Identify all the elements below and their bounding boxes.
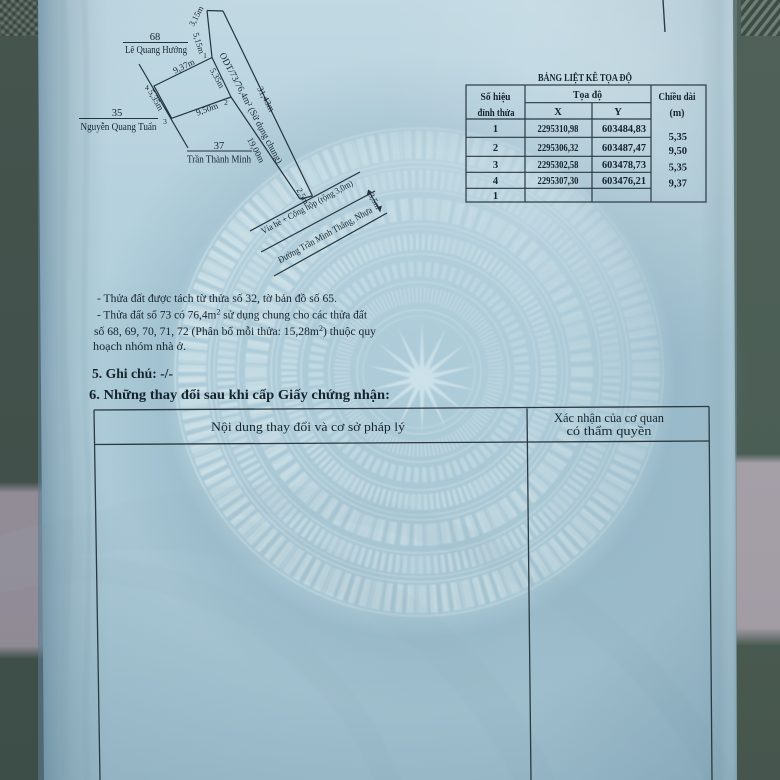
svg-text:603478,73: 603478,73 xyxy=(602,160,646,171)
svg-text:35: 35 xyxy=(112,108,123,119)
svg-text:Xác nhận của cơ quan: Xác nhận của cơ quan xyxy=(554,411,665,425)
svg-text:Lê Quang Hướng: Lê Quang Hướng xyxy=(125,45,188,56)
svg-text:2: 2 xyxy=(224,98,228,107)
svg-text:1: 1 xyxy=(493,124,498,135)
svg-text:Tọa độ: Tọa độ xyxy=(573,90,602,101)
svg-text:đỉnh thửa: đỉnh thửa xyxy=(478,108,515,119)
svg-text:603487,47: 603487,47 xyxy=(602,143,646,154)
svg-text:Trần Thành Minh: Trần Thành Minh xyxy=(187,155,252,166)
svg-text:(m): (m) xyxy=(670,108,685,119)
svg-text:BẢNG LIỆT KÊ TỌA ĐỘ: BẢNG LIỆT KÊ TỌA ĐỘ xyxy=(538,71,632,84)
svg-text:3: 3 xyxy=(493,160,498,171)
svg-text:5,35: 5,35 xyxy=(669,132,687,143)
svg-text:37: 37 xyxy=(214,141,225,152)
svg-text:603476,21: 603476,21 xyxy=(602,176,646,187)
svg-text:Nội dung thay đổi và cơ sở phá: Nội dung thay đổi và cơ sở pháp lý xyxy=(211,420,406,434)
svg-text:số 68, 69, 70, 71, 72 (Phân bổ: số 68, 69, 70, 71, 72 (Phân bổ mỗi thửa:… xyxy=(94,324,376,338)
svg-text:603484,83: 603484,83 xyxy=(602,124,646,135)
svg-text:2295307,30: 2295307,30 xyxy=(538,176,579,187)
svg-text:1: 1 xyxy=(493,191,498,202)
svg-text:4: 4 xyxy=(493,176,499,187)
svg-text:- Thửa đất số 73 có 76,4m2 sử: - Thửa đất số 73 có 76,4m2 sử dụng chung… xyxy=(97,308,368,322)
svg-text:2295302,58: 2295302,58 xyxy=(538,160,579,171)
svg-text:9,37: 9,37 xyxy=(669,179,687,190)
svg-text:Nguyễn Quang Tuấn: Nguyễn Quang Tuấn xyxy=(81,122,158,133)
svg-text:2295306,32: 2295306,32 xyxy=(538,143,579,154)
svg-text:5. Ghi chú: -/-: 5. Ghi chú: -/- xyxy=(92,366,173,381)
svg-text:2: 2 xyxy=(493,143,498,154)
svg-text:Y: Y xyxy=(614,107,622,118)
svg-text:3: 3 xyxy=(163,117,167,126)
svg-text:Số hiệu: Số hiệu xyxy=(481,92,511,103)
svg-text:5,35: 5,35 xyxy=(669,163,687,174)
svg-text:hoạch nhóm nhà ở.: hoạch nhóm nhà ở. xyxy=(93,341,186,353)
svg-text:- Thửa đất được tách từ thửa s: - Thửa đất được tách từ thửa số 32, tờ b… xyxy=(97,292,337,305)
svg-text:2295310,98: 2295310,98 xyxy=(538,124,579,135)
svg-text:có thẩm quyền: có thẩm quyền xyxy=(567,424,653,438)
svg-text:Chiều dài: Chiều dài xyxy=(659,92,696,103)
svg-text:68: 68 xyxy=(150,32,161,43)
svg-text:9,50: 9,50 xyxy=(669,146,687,157)
svg-text:X: X xyxy=(554,107,562,118)
svg-text:6. Những thay đổi sau khi cấp: 6. Những thay đổi sau khi cấp Giấy chứng… xyxy=(89,388,390,403)
